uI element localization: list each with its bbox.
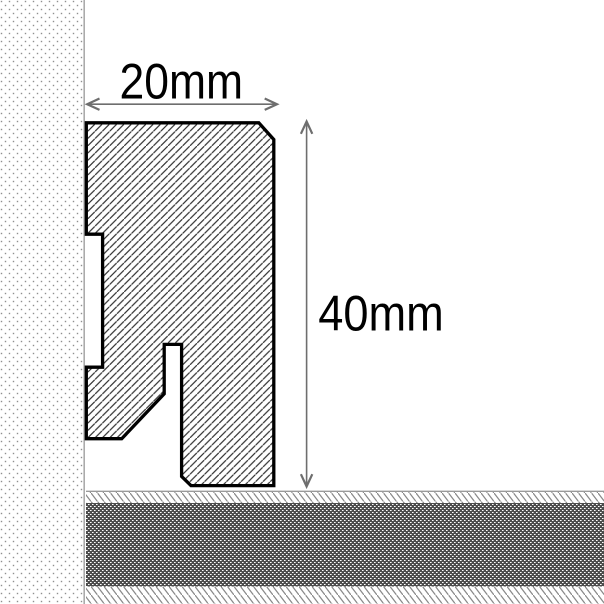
svg-text:40mm: 40mm bbox=[318, 286, 444, 342]
svg-text:20mm: 20mm bbox=[120, 54, 244, 110]
